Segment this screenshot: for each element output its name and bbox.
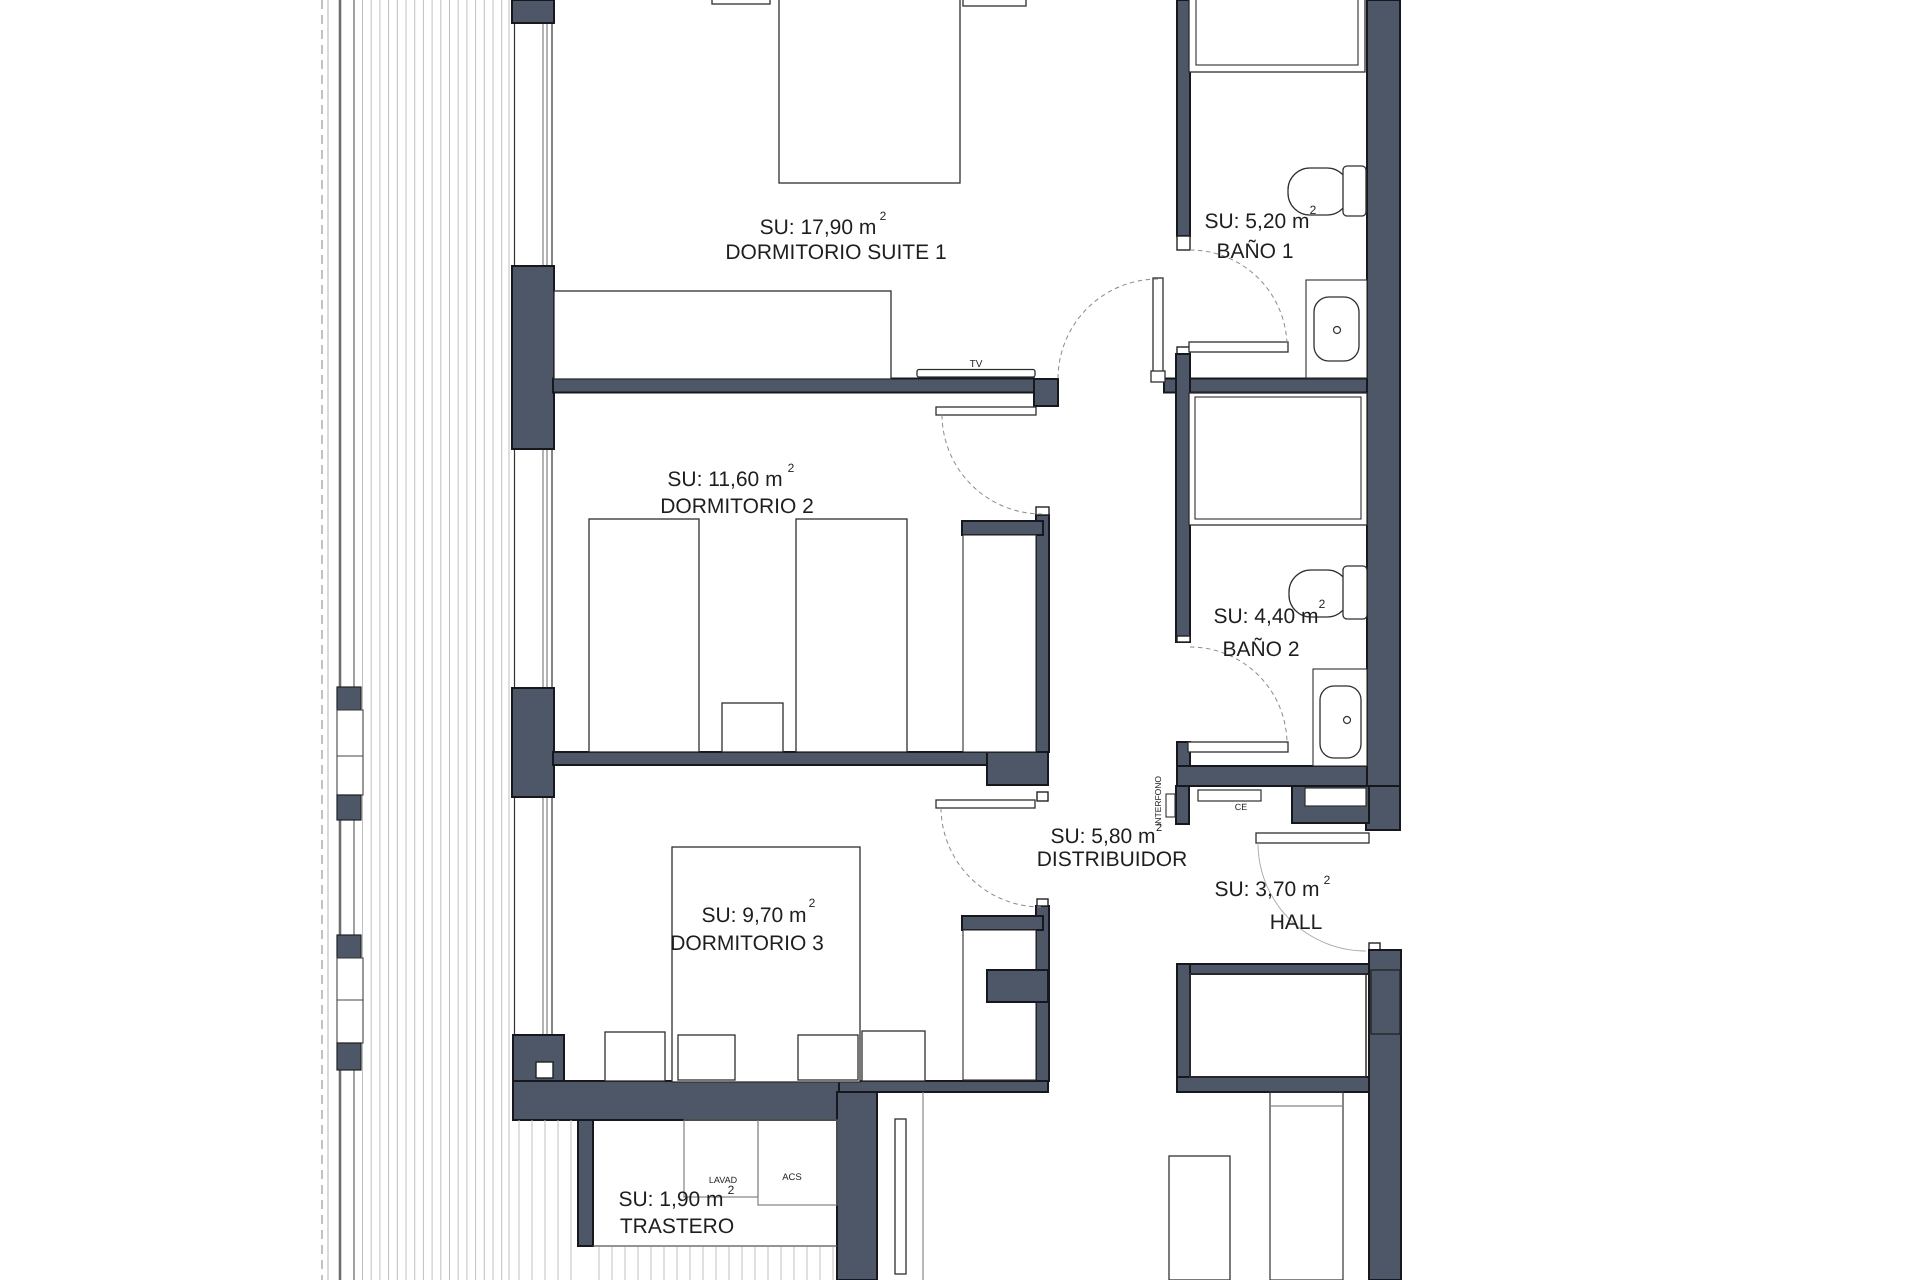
svg-text:2: 2 [1310, 203, 1317, 217]
svg-text:TV: TV [970, 359, 983, 370]
svg-text:SU: 5,20 m: SU: 5,20 m [1204, 210, 1309, 233]
svg-text:2: 2 [728, 1183, 735, 1197]
svg-text:SU: 17,90 m: SU: 17,90 m [760, 216, 877, 239]
svg-text:2: 2 [1324, 873, 1331, 887]
svg-text:SU: 5,80 m: SU: 5,80 m [1050, 825, 1155, 848]
svg-text:DORMITORIO 2: DORMITORIO 2 [660, 495, 814, 518]
svg-text:2: 2 [809, 896, 816, 910]
svg-text:SU: 1,90 m: SU: 1,90 m [618, 1188, 723, 1211]
svg-text:2: 2 [788, 461, 795, 475]
svg-text:CE: CE [1235, 802, 1248, 812]
svg-text:HALL: HALL [1270, 911, 1323, 934]
svg-text:DISTRIBUIDOR: DISTRIBUIDOR [1037, 848, 1188, 871]
svg-text:BAÑO 2: BAÑO 2 [1222, 637, 1299, 661]
svg-text:SU: 9,70 m: SU: 9,70 m [701, 904, 806, 927]
svg-text:SU: 11,60 m: SU: 11,60 m [667, 468, 782, 491]
svg-text:2: 2 [880, 209, 887, 223]
svg-text:INTERFONO: INTERFONO [1153, 776, 1163, 826]
svg-text:TRASTERO: TRASTERO [620, 1215, 734, 1238]
svg-text:DORMITORIO SUITE 1: DORMITORIO SUITE 1 [725, 241, 946, 264]
svg-text:SU: 4,40 m: SU: 4,40 m [1213, 605, 1318, 628]
svg-text:2: 2 [1156, 822, 1162, 834]
svg-text:2: 2 [1319, 597, 1326, 611]
svg-text:ACS: ACS [782, 1172, 802, 1183]
svg-text:BAÑO 1: BAÑO 1 [1216, 239, 1293, 263]
svg-text:SU: 3,70 m: SU: 3,70 m [1214, 878, 1319, 901]
svg-text:DORMITORIO 3: DORMITORIO 3 [670, 932, 824, 955]
